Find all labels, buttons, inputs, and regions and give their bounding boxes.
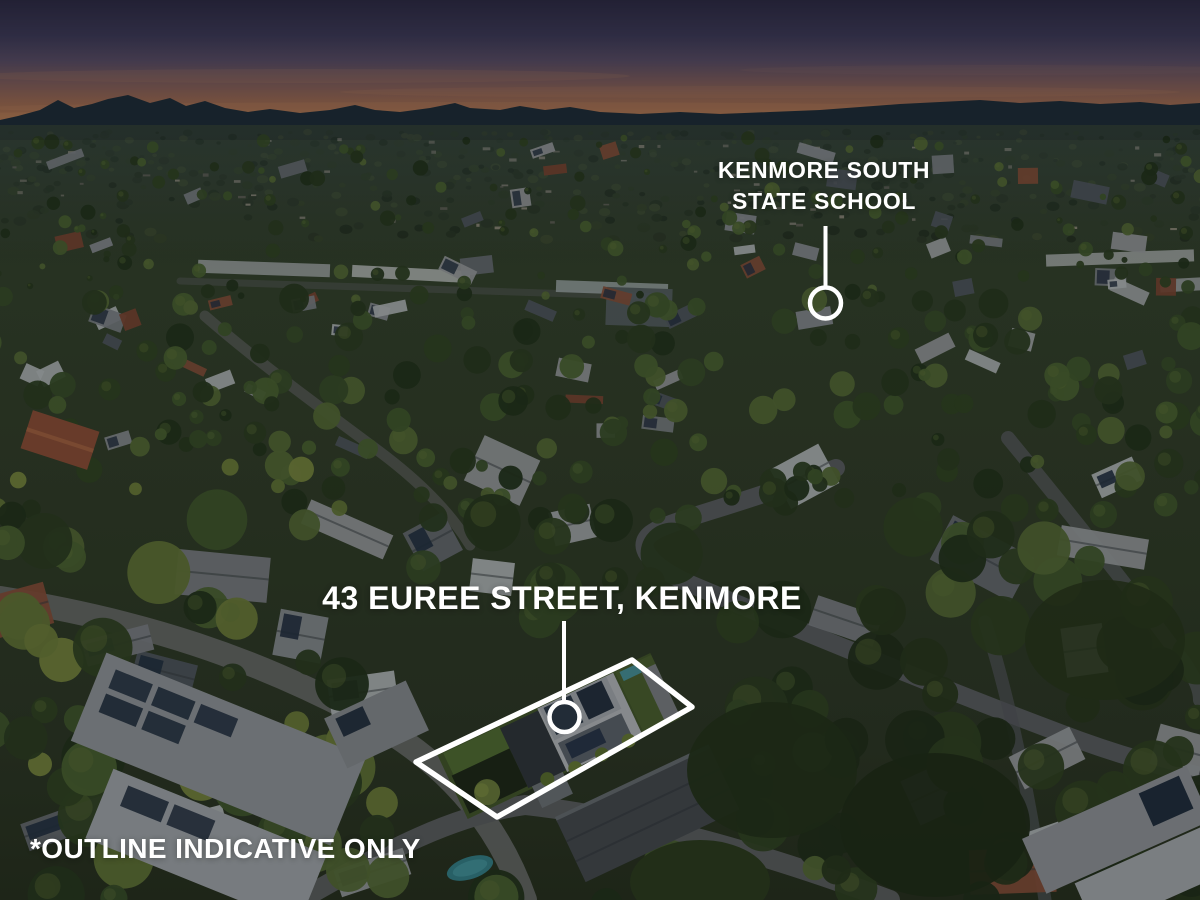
school-label: KENMORE SOUTH STATE SCHOOL [718,155,930,217]
outline-disclaimer-text: *OUTLINE INDICATIVE ONLY [30,833,421,865]
aerial-photo: KENMORE SOUTH STATE SCHOOL 43 EUREE STRE… [0,0,1200,900]
property-address-label: 43 EUREE STREET, KENMORE [322,580,802,617]
sky-dim-overlay [0,0,1200,140]
aerial-scene [0,0,1200,900]
school-label-line2: STATE SCHOOL [718,186,930,217]
school-label-line1: KENMORE SOUTH [718,155,930,186]
